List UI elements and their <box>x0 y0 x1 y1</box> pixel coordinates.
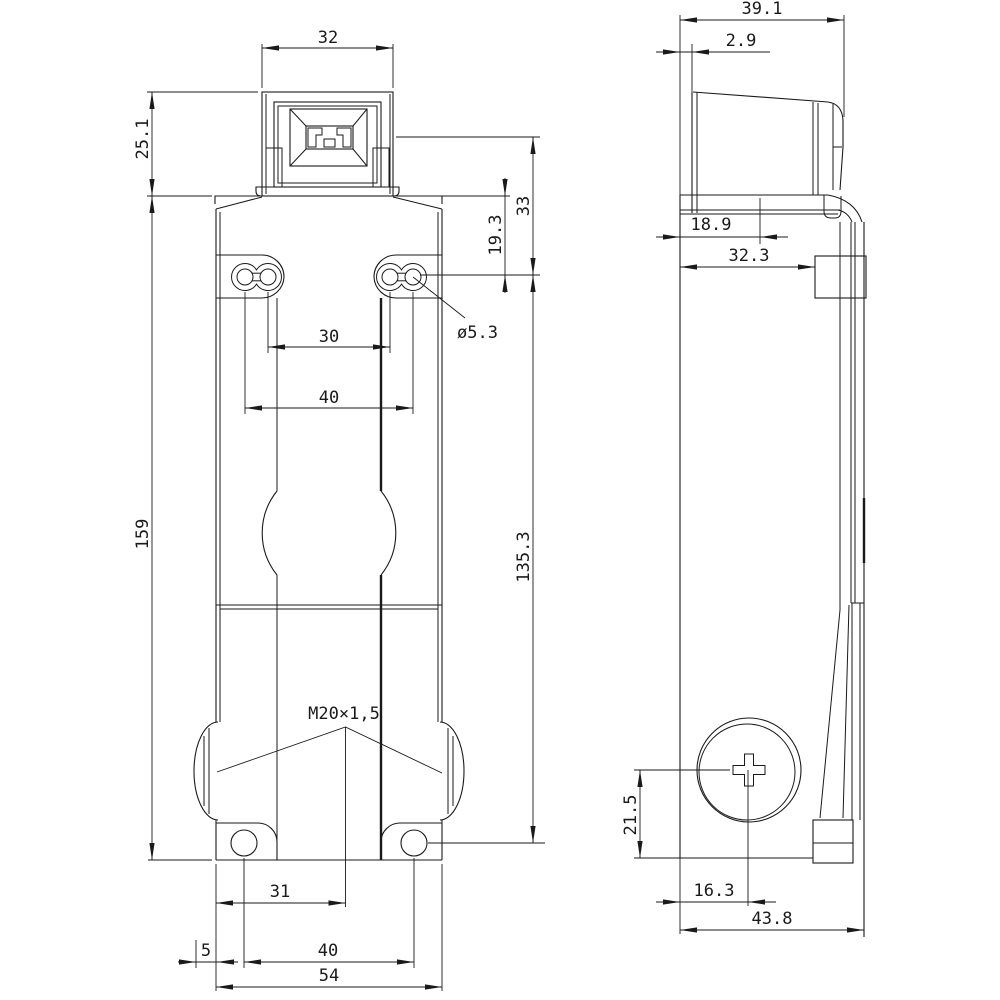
dim-slot-diameter: ø5.3 <box>457 323 498 343</box>
side-dimensions: 39.1 2.9 18.9 32.3 21.5 <box>621 0 864 934</box>
drawing-canvas: 32 25.1 159 33 19.3 <box>0 0 1000 1000</box>
left-ear <box>216 255 284 298</box>
technical-drawing: 32 25.1 159 33 19.3 <box>0 0 1000 1000</box>
front-view: 32 25.1 159 33 19.3 <box>133 28 545 991</box>
dim-hole-spacing: 40 <box>318 941 338 961</box>
label-thread: M20×1,5 <box>308 704 380 724</box>
dim-axis-to-slot: 33 <box>514 196 534 216</box>
right-slot-outer <box>377 263 427 290</box>
right-foot-hole <box>401 830 427 856</box>
dim-front-to-clamp: 32.3 <box>729 246 770 266</box>
right-gland <box>440 722 464 820</box>
dim-body-width: 54 <box>319 966 339 986</box>
bulge-left-arc <box>262 491 277 575</box>
left-gland <box>194 722 218 820</box>
side-body-outline <box>680 195 866 937</box>
dim-depth-with-head: 39.1 <box>742 0 783 19</box>
dim-front-to-gland: 16.3 <box>694 881 735 901</box>
dim-slot-spacing-inner: 30 <box>319 327 339 347</box>
dim-slot-to-hole: 135.3 <box>514 531 534 582</box>
dim-head-setback: 2.9 <box>726 31 757 51</box>
side-head-outline <box>692 92 843 218</box>
dim-top-to-slot: 19.3 <box>486 215 506 256</box>
dim-depth-total: 43.8 <box>752 909 793 929</box>
dim-hole-to-center: 31 <box>270 882 290 902</box>
dim-gland-protrusion: 5 <box>201 941 211 961</box>
dim-head-height: 25.1 <box>133 119 153 160</box>
front-head-outline <box>256 92 399 196</box>
dim-front-to-axis: 18.9 <box>691 215 732 235</box>
dim-gland-center-height: 21.5 <box>621 795 641 836</box>
left-foot <box>216 823 277 860</box>
left-foot-hole <box>231 830 257 856</box>
key-slot-icon <box>308 128 351 147</box>
front-dimensions: 32 25.1 159 33 19.3 <box>133 28 545 991</box>
screw-cross-icon <box>733 754 765 786</box>
right-foot <box>381 823 442 860</box>
side-view: 39.1 2.9 18.9 32.3 21.5 <box>621 0 866 937</box>
dim-body-height: 159 <box>133 519 153 550</box>
front-body-outline <box>194 196 464 860</box>
dim-slot-spacing-outer: 40 <box>319 388 339 408</box>
bulge-right-arc <box>381 491 396 575</box>
left-slot-outer <box>232 263 282 290</box>
side-foot-block <box>813 820 853 863</box>
head-catch-tab <box>824 195 841 218</box>
dim-head-width: 32 <box>318 28 338 48</box>
